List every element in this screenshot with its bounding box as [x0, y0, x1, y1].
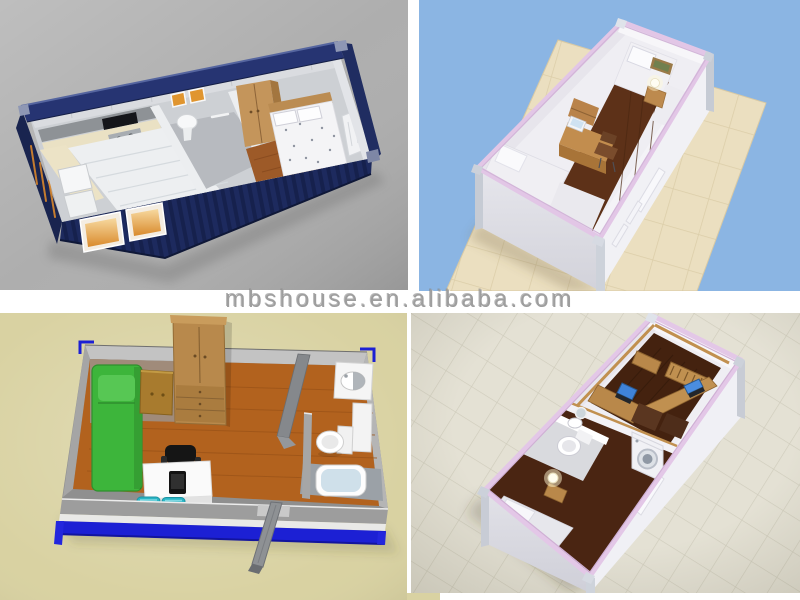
- container-office-render-canvas: [411, 313, 800, 593]
- wardrobe-knob: [250, 111, 253, 114]
- round-mirror: [576, 408, 587, 419]
- green-bed: [92, 365, 142, 491]
- bathtub: [316, 465, 366, 496]
- white-shelf-upper: [58, 164, 92, 194]
- render-blue-container-interior: [0, 0, 408, 290]
- blue-container-render-canvas: [0, 0, 408, 290]
- desktop-computer: [169, 471, 186, 494]
- watermark-text: mbshouse.en.alibaba.com: [0, 287, 800, 313]
- floor-plan: [54, 315, 388, 574]
- wardrobe: [170, 315, 232, 427]
- white-container-render-canvas: [419, 0, 800, 291]
- product-image-collage: mbshouse.en.alibaba.com: [0, 0, 800, 600]
- render-container-office-bedroom: [411, 313, 800, 593]
- bathroom-sink: [334, 362, 373, 400]
- table-lamp: [651, 79, 660, 88]
- render-floor-plan: [0, 313, 407, 600]
- bathroom-window: [171, 92, 186, 107]
- table-lamp: [548, 473, 558, 483]
- nightstand: [140, 370, 173, 415]
- floor-plan-canvas: [0, 313, 407, 600]
- corner-cap: [334, 40, 348, 52]
- bathroom-cabinet: [352, 403, 372, 452]
- wall-sink: [177, 115, 197, 130]
- wardrobe-knob: [257, 110, 260, 113]
- corner-cap: [18, 104, 30, 116]
- bathroom-sink: [568, 418, 582, 428]
- render-white-container-bedroom: [419, 0, 800, 291]
- bathroom-window: [189, 88, 205, 103]
- toilet-seat: [562, 440, 576, 452]
- wall-top-edge: [304, 413, 312, 414]
- collage-edge-patch: [407, 593, 440, 600]
- sink-pedestal: [183, 127, 192, 141]
